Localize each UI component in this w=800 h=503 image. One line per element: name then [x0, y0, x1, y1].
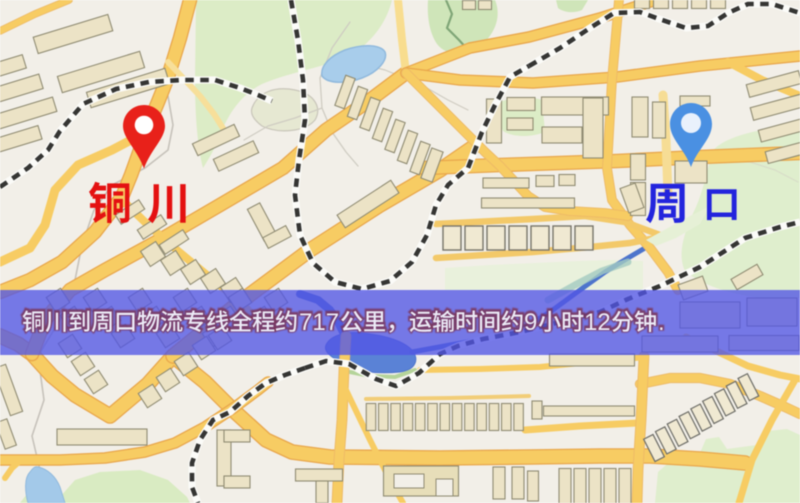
svg-text:12: 12: [584, 309, 611, 336]
svg-text:.: .: [658, 309, 665, 336]
svg-text:9: 9: [524, 309, 537, 336]
svg-text:717: 717: [299, 309, 339, 336]
